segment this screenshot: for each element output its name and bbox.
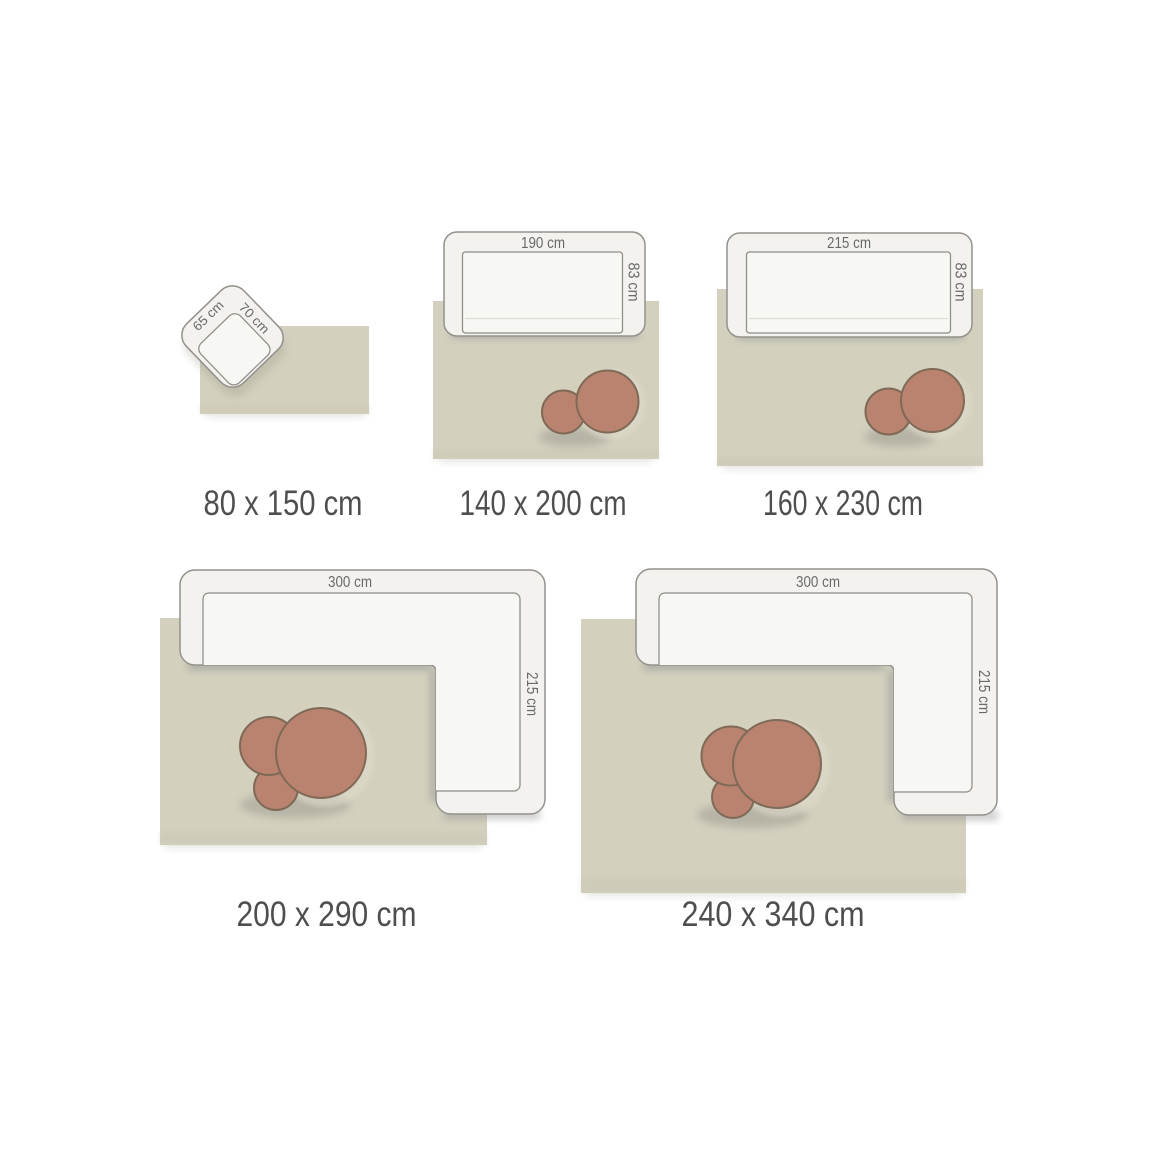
svg-text:300 cm: 300 cm	[796, 574, 840, 591]
svg-text:200 x 290 cm: 200 x 290 cm	[237, 895, 417, 934]
svg-text:215 cm: 215 cm	[975, 670, 992, 714]
svg-text:215 cm: 215 cm	[827, 235, 871, 252]
svg-text:83 cm: 83 cm	[952, 263, 969, 302]
svg-text:190 cm: 190 cm	[521, 235, 565, 252]
svg-text:80 x 150 cm: 80 x 150 cm	[204, 484, 363, 523]
svg-text:160 x 230 cm: 160 x 230 cm	[763, 484, 923, 523]
svg-text:240 x 340 cm: 240 x 340 cm	[682, 895, 865, 934]
svg-text:83 cm: 83 cm	[625, 263, 642, 302]
svg-text:300 cm: 300 cm	[328, 574, 372, 591]
svg-text:215 cm: 215 cm	[523, 672, 540, 716]
svg-text:140 x 200 cm: 140 x 200 cm	[460, 484, 627, 523]
